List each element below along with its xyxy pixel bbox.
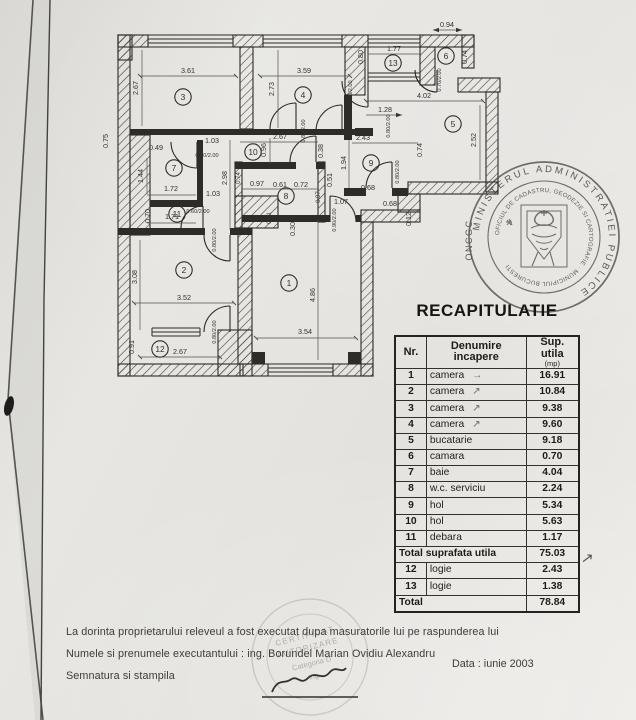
pencil-arrow-mark: → (464, 370, 482, 381)
dimension-label: 0.80 (356, 50, 365, 64)
header-suprafata-label: Sup. utila (540, 336, 564, 360)
room-name: hol (426, 498, 526, 514)
table-row: 8w.c. serviciu2.24 (395, 482, 579, 498)
dimension-label: 1.03 (205, 136, 219, 145)
room-number: 4 (301, 90, 306, 100)
room-name: logie (426, 563, 526, 579)
dimension-label: 0.80/2.00 (395, 160, 401, 183)
scanned-floorplan-page: 0.943.612.673.592.731.770.800.80/2.000.7… (0, 0, 636, 720)
dimension-label: 0.80/2.00 (348, 80, 354, 103)
room-name: baie (426, 466, 526, 482)
pencil-arrow-mark: ↗ (464, 403, 480, 414)
room-name: camera↗ (426, 401, 526, 417)
dimension-label: 0.60/2.00 (186, 209, 209, 215)
row-number: 1 (395, 368, 426, 384)
room-name: hol (426, 514, 526, 530)
room-number: 10 (248, 147, 258, 157)
stamp-coat-of-arms (506, 205, 567, 267)
area-value: 9.18 (526, 433, 579, 449)
area-value: 9.60 (526, 417, 579, 433)
row-number: 5 (395, 433, 426, 449)
dimension-label: 1.28 (378, 105, 392, 114)
dimension-label: 2.67 (131, 81, 140, 95)
dimension-label: 3.54 (298, 327, 312, 336)
dimension-label: 0.12 (404, 212, 413, 226)
dimension-label: 0.51 (325, 173, 334, 187)
row-number: 11 (395, 530, 426, 546)
room-name: bucatarie (426, 433, 526, 449)
dimension-label: 0.97 (316, 191, 322, 203)
dimension-label: 0.80/2.00 (212, 228, 218, 251)
table-row: 5bucatarie9.18 (395, 433, 579, 449)
dimension-label: 1.03 (206, 189, 220, 198)
room-number: 9 (369, 158, 374, 168)
dimension-label: 0.49 (149, 143, 163, 152)
footer-note: La dorinta proprietarului releveul a fos… (66, 626, 536, 638)
row-number: 2 (395, 385, 426, 401)
table-row: 12logie2.43 (395, 563, 579, 579)
dimension-label: 3.59 (297, 66, 311, 75)
dimension-label: 0.60/2.00 (195, 153, 218, 159)
dimension-label: 0.94 (440, 20, 454, 29)
dimension-label: 1.07 (334, 197, 348, 206)
room-name: camera↗ (426, 385, 526, 401)
area-value: 2.43 (526, 563, 579, 579)
footer-date: Data : iunie 2003 (452, 658, 534, 670)
area-value: 9.38 (526, 401, 579, 417)
table-row: 2camera↗10.84 (395, 385, 579, 401)
dimension-label: 0.90/2.00 (332, 208, 338, 231)
dimension-label: 1.72 (164, 184, 178, 193)
room-number: 2 (182, 265, 187, 275)
area-value: 1.38 (526, 579, 579, 595)
header-nr: Nr. (395, 336, 426, 368)
table-row: 4camera↗9.60 (395, 417, 579, 433)
dimension-label: 0.80/2.00 (212, 320, 218, 343)
room-number: 5 (451, 119, 456, 129)
dimension-label: 2.43 (356, 133, 370, 142)
dimension-label: 0.80/2.00 (301, 119, 307, 142)
area-value: 1.17 (526, 530, 579, 546)
row-label: Total (395, 595, 526, 612)
area-value: 10.84 (526, 385, 579, 401)
table-row: 13logie1.38 (395, 579, 579, 595)
room-name: camara (426, 449, 526, 465)
dimension-label: 4.02 (417, 91, 431, 100)
dimension-label: 1.94 (339, 156, 348, 170)
dimension-label: 2.98 (220, 171, 229, 185)
doors (171, 70, 437, 332)
dimension-label: 0.74 (236, 172, 242, 184)
room-name: logie (426, 579, 526, 595)
recap-table: Nr. Denumire incapere Sup. utila (mp) 1c… (394, 335, 580, 613)
dimension-label: 0.70 (143, 209, 152, 223)
dimension-label: 3.52 (177, 293, 191, 302)
room-name: camera↗ (426, 417, 526, 433)
dimension-label: 0.75 (101, 134, 110, 148)
pencil-side-arrow: ↗ (580, 548, 595, 568)
area-value: 5.34 (526, 498, 579, 514)
table-row: 3camera↗9.38 (395, 401, 579, 417)
signature (262, 668, 358, 697)
dimension-label: 0.97 (250, 179, 264, 188)
room-number: 11 (173, 209, 182, 219)
row-number: 7 (395, 466, 426, 482)
area-value: 4.04 (526, 466, 579, 482)
dimension-label: 0.68 (383, 199, 397, 208)
table-row: Total suprafata utila75.03 (395, 547, 579, 563)
dimension-label: 2.67 (273, 132, 287, 141)
row-number: 6 (395, 449, 426, 465)
header-denumire: Denumire incapere (426, 336, 526, 368)
dimension-label: 1.77 (387, 44, 401, 53)
area-value: 2.24 (526, 482, 579, 498)
row-label: Total suprafata utila (395, 547, 526, 563)
dimension-label: 4.86 (308, 288, 317, 302)
row-number: 4 (395, 417, 426, 433)
dimension-label: 0.91 (127, 340, 136, 354)
dimension-label: 3.08 (130, 270, 139, 284)
dimension-label: 2.67 (173, 347, 187, 356)
row-number: 9 (395, 498, 426, 514)
dimension-label: 0.68 (361, 183, 375, 192)
room-name: debara (426, 530, 526, 546)
dimension-label: 0.72 (294, 180, 308, 189)
pencil-arrow-mark: ↗ (464, 386, 480, 397)
dimension-label: 2.73 (267, 82, 276, 96)
table-title: RECAPITULATIE (394, 301, 580, 321)
dimension-label: 0.74 (460, 50, 469, 64)
table-row: 9hol5.34 (395, 498, 579, 514)
area-value: 5.63 (526, 514, 579, 530)
footer-signature-label: Semnatura si stampila (66, 670, 175, 682)
dimension-label: 0.74 (415, 143, 424, 157)
dimension-label: 0.80/2.00 (386, 114, 392, 137)
room-name: camera→ (426, 368, 526, 384)
room-name: w.c. serviciu (426, 482, 526, 498)
room-number: 13 (388, 58, 398, 68)
room-number: 7 (172, 163, 177, 173)
table-row: 11debara1.17 (395, 530, 579, 546)
room-number: 12 (155, 344, 165, 354)
table-row: 1camera→16.91 (395, 368, 579, 384)
dimension-label: 1.44 (136, 169, 145, 183)
room-number: 6 (444, 51, 449, 61)
table-row: 7baie4.04 (395, 466, 579, 482)
row-number: 13 (395, 579, 426, 595)
row-number: 12 (395, 563, 426, 579)
header-suprafata: Sup. utila (mp) (526, 336, 579, 368)
room-number: 1 (287, 278, 292, 288)
pencil-arrow-mark: ↗ (464, 419, 480, 430)
table-row: Total78.84 (395, 595, 579, 612)
area-value: 16.91 (526, 368, 579, 384)
room-number: 3 (181, 92, 186, 102)
dimension-label: 2.52 (469, 133, 478, 147)
row-number: 8 (395, 482, 426, 498)
area-value: 0.70 (526, 449, 579, 465)
table-row: 6camara0.70 (395, 449, 579, 465)
header-suprafata-unit: (mp) (530, 360, 575, 368)
page-edge (2, 0, 50, 720)
dimension-label: 0.70/2.00 (437, 68, 443, 91)
area-value: 78.84 (526, 595, 579, 612)
area-value: 75.03 (526, 547, 579, 563)
stamp-side-text: ONCGC (464, 220, 474, 261)
dimension-label: 3.61 (181, 66, 195, 75)
table-header-row: Nr. Denumire incapere Sup. utila (mp) (395, 336, 579, 368)
row-number: 3 (395, 401, 426, 417)
row-number: 10 (395, 514, 426, 530)
dimension-label: 0.31 (267, 212, 273, 224)
table-row: 10hol5.63 (395, 514, 579, 530)
dimension-label: 0.30 (288, 222, 297, 236)
room-number: 8 (284, 191, 289, 201)
dimension-label: 0.38 (316, 144, 325, 158)
